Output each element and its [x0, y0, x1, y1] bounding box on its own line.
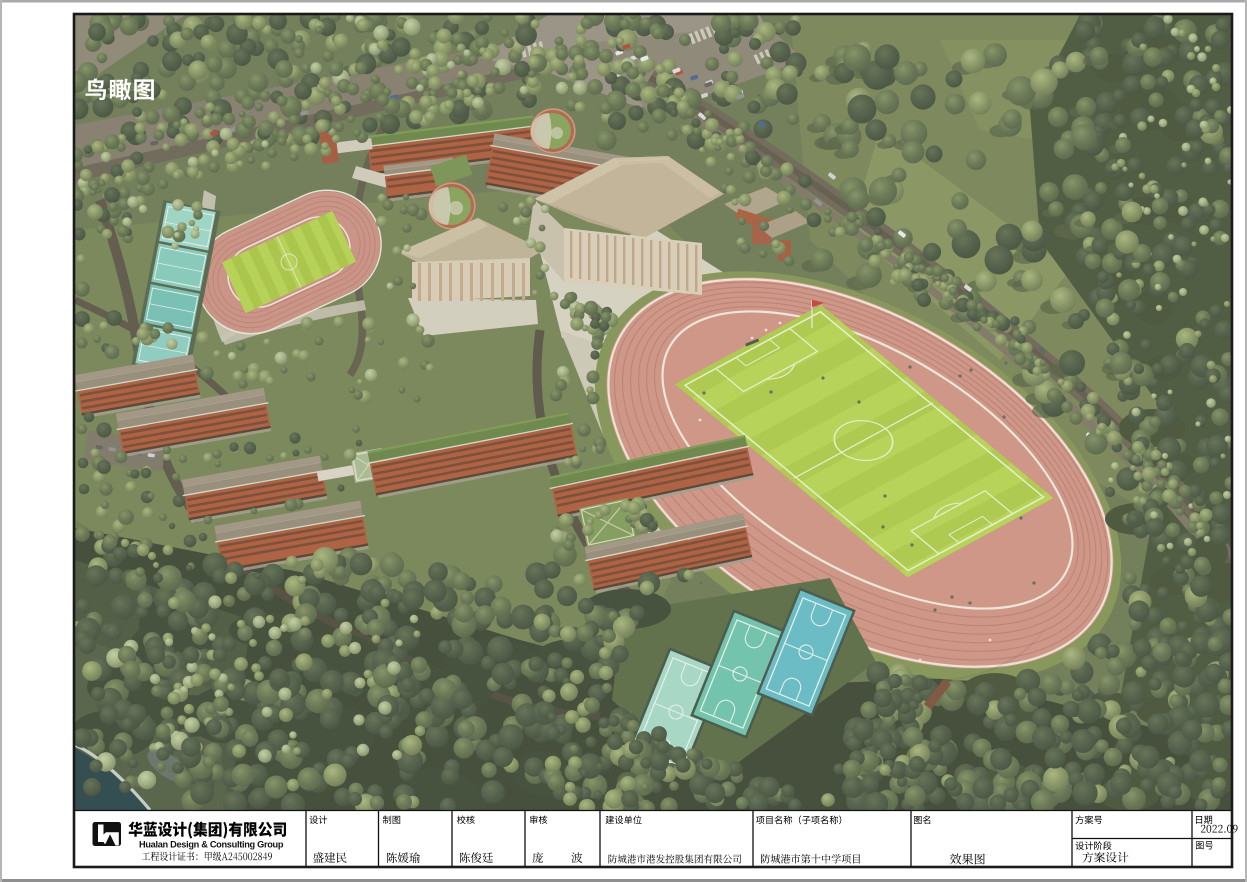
svg-text:Hualan Design & Consulting Gro: Hualan Design & Consulting Group: [139, 840, 284, 850]
